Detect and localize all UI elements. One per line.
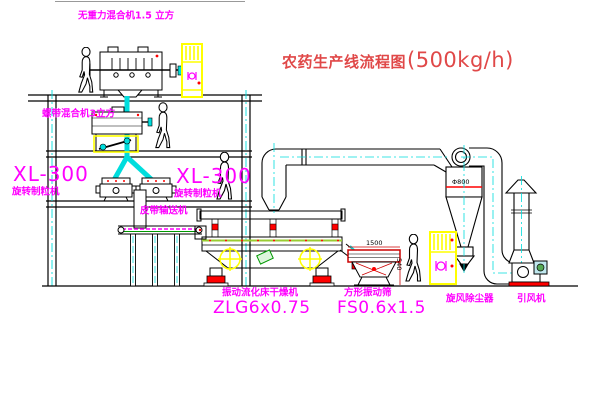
label-cyclone: 旋风除尘器 <box>446 295 494 305</box>
label-fan: 引风机 <box>517 295 546 305</box>
label-granulator-right-model: XL-300 <box>176 166 252 186</box>
belt-conveyor <box>118 226 202 286</box>
diagram-title-capacity: (500kg/h) <box>407 48 514 72</box>
label-granulator-left-model: XL-300 <box>13 164 89 184</box>
label-sieve-model: FS0.6x1.5 <box>337 300 426 317</box>
label-granulator-right-name: 旋转制粒机 <box>174 190 222 200</box>
diagram-title-zh: 农药生产线流程图 <box>282 51 406 72</box>
control-cabinet-top <box>182 44 202 97</box>
label-belt-conveyor: 皮带输送机 <box>140 207 188 217</box>
label-granulator-left-name: 旋转制粒机 <box>12 188 60 198</box>
worker-second-floor <box>156 103 170 148</box>
worker-ground <box>406 234 421 281</box>
feed-pipe <box>114 96 152 180</box>
exhaust-duct <box>262 143 452 213</box>
label-dryer-model: ZLG6x0.75 <box>213 300 311 317</box>
dim-cyclone-diameter: Φ800 <box>452 179 470 186</box>
control-cabinet-right <box>430 232 456 284</box>
induced-draft-fan <box>509 261 549 286</box>
label-second-mixer: 螺带混合机3立方 <box>42 110 115 120</box>
fluid-bed-dryer <box>195 209 345 286</box>
dim-sieve-width: 1500 <box>366 240 383 247</box>
flow-diagram: 农药生产线流程图 (500kg/h) 无重力混合机1.5 立方 螺带混合机3立方… <box>0 0 600 403</box>
gravity-mixer <box>84 47 183 97</box>
dim-sieve-height: 540 <box>396 258 403 270</box>
label-top-mixer: 无重力混合机1.5 立方 <box>78 12 174 22</box>
square-sieve <box>340 244 400 285</box>
granulator-left <box>96 178 136 201</box>
diagram-title: 农药生产线流程图 (500kg/h) <box>282 48 514 72</box>
